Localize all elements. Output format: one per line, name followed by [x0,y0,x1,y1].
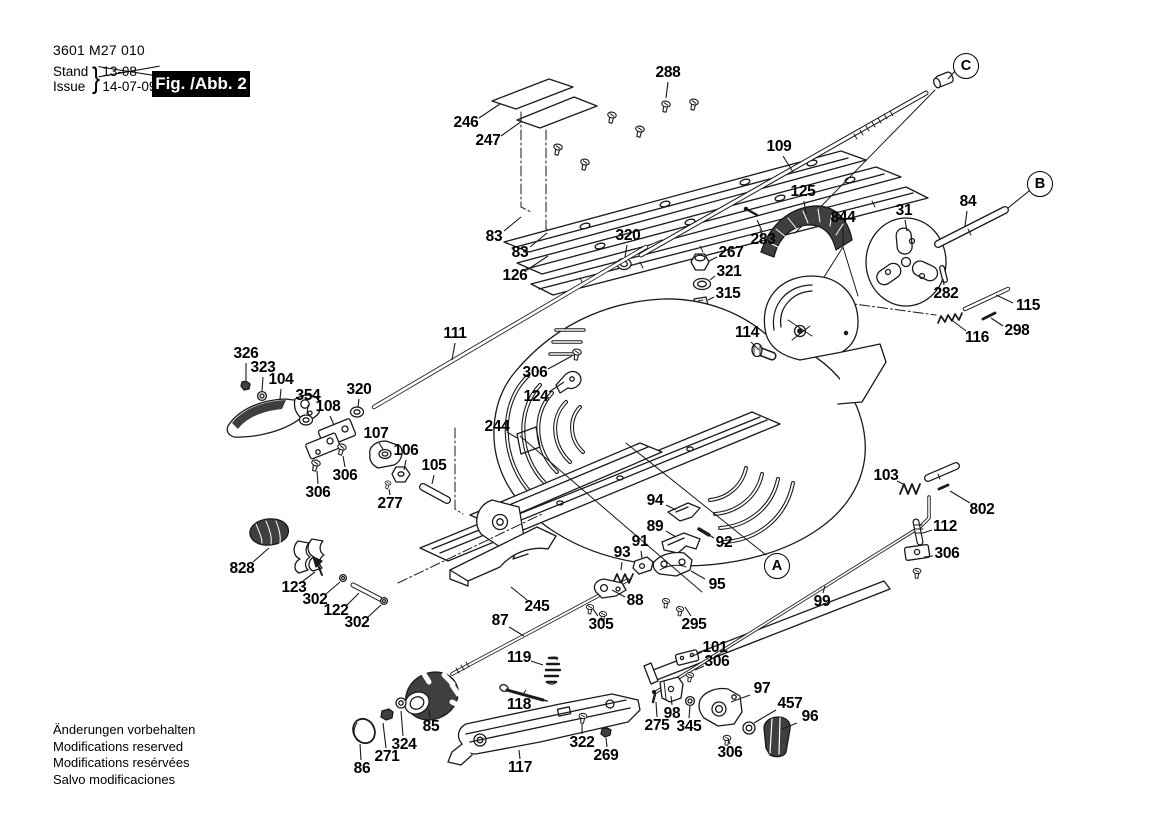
part-callout-88: 88 [627,592,644,610]
part-callout-267: 267 [719,244,744,262]
part-callout-306: 306 [935,545,960,563]
part-callout-117: 117 [508,759,532,777]
part-callout-114: 114 [735,324,759,342]
part-callout-87: 87 [492,612,509,630]
part-callout-116: 116 [965,329,989,347]
part-callout-320: 320 [616,227,641,245]
part-callout-322: 322 [570,734,595,752]
part-callout-298: 298 [1005,322,1030,340]
part-callout-97: 97 [754,680,771,698]
part-callout-83: 83 [512,244,529,262]
part-callout-305: 305 [589,616,614,634]
part-callout-306: 306 [705,653,730,671]
part-callout-844: 844 [831,209,856,227]
part-callout-85: 85 [423,718,440,736]
part-callout-105: 105 [422,457,447,475]
part-callout-111: 111 [443,325,466,343]
part-callout-271: 271 [375,748,400,766]
exploded-view-drawing [0,0,1169,826]
part-callout-245: 245 [525,598,550,616]
part-callout-109: 109 [767,138,792,156]
reference-bubble-C: C [953,53,979,79]
part-callout-244: 244 [485,418,510,436]
part-callout-89: 89 [647,518,664,536]
part-callout-320: 320 [347,381,372,399]
part-callout-315: 315 [716,285,741,303]
parts-diagram-page: 3601 M27 010 Stand Issue } 13-08 14-07-0… [0,0,1169,826]
part-callout-84: 84 [960,193,977,211]
part-callout-457: 457 [778,695,803,713]
part-callout-321: 321 [717,263,742,281]
reference-bubble-A: A [764,553,790,579]
part-callout-345: 345 [677,718,702,736]
part-callout-246: 246 [454,114,479,132]
part-callout-108: 108 [316,398,341,416]
part-callout-306: 306 [718,744,743,762]
part-callout-112: 112 [933,518,957,536]
part-callout-802: 802 [970,501,995,519]
part-callout-306: 306 [306,484,331,502]
part-callout-31: 31 [896,202,913,220]
part-callout-288: 288 [656,64,681,82]
part-callout-295: 295 [682,616,707,634]
part-callout-269: 269 [594,747,619,765]
part-callout-124: 124 [524,388,549,406]
part-callout-96: 96 [802,708,819,726]
part-callout-115: 115 [1016,297,1040,315]
part-callout-99: 99 [814,593,831,611]
part-callout-103: 103 [874,467,899,485]
reference-bubble-B: B [1027,171,1053,197]
part-callout-86: 86 [354,760,371,778]
part-callout-302: 302 [345,614,370,632]
part-callout-126: 126 [503,267,528,285]
part-callout-106: 106 [394,442,419,460]
part-callout-306: 306 [523,364,548,382]
part-callout-828: 828 [230,560,255,578]
part-callout-93: 93 [614,544,631,562]
part-callout-107: 107 [364,425,389,443]
part-callout-306: 306 [333,467,358,485]
part-callout-118: 118 [507,696,531,714]
part-callout-125: 125 [791,183,816,201]
part-callout-247: 247 [476,132,501,150]
part-callout-95: 95 [709,576,726,594]
part-callout-275: 275 [645,717,670,735]
part-callout-92: 92 [716,534,733,552]
part-callout-119: 119 [507,649,531,667]
part-callout-94: 94 [647,492,664,510]
part-callout-104: 104 [269,371,294,389]
part-callout-283: 283 [751,231,776,249]
part-callout-282: 282 [934,285,959,303]
part-callout-83: 83 [486,228,503,246]
part-callout-277: 277 [378,495,403,513]
